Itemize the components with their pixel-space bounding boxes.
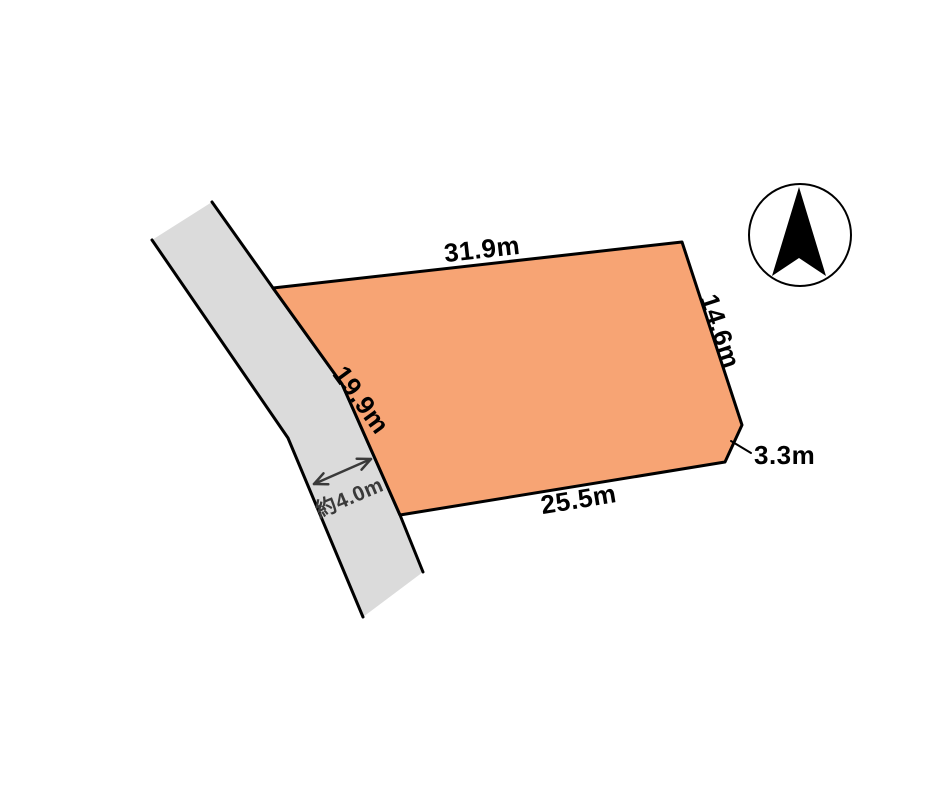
north-arrow bbox=[749, 184, 851, 286]
site-plan-page: 31.9m 14.6m 3.3m 25.5m 19.9m 約4.0m bbox=[0, 0, 950, 800]
site-plan-canvas: 31.9m 14.6m 3.3m 25.5m 19.9m 約4.0m bbox=[0, 0, 950, 800]
corner-cut-leader-line bbox=[731, 441, 751, 453]
corner-cut-dimension-label: 3.3m bbox=[754, 440, 815, 470]
